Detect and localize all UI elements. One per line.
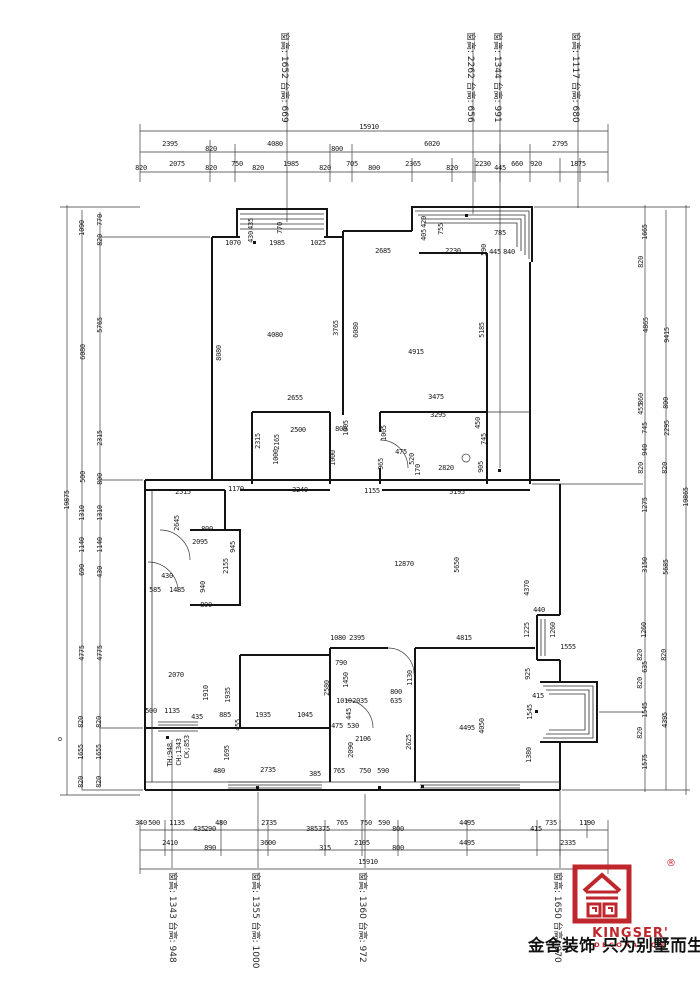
dim-label: 5185 — [478, 322, 486, 338]
dim-label: 5685 — [662, 559, 670, 575]
dim-label: 820 — [636, 649, 644, 661]
dim-label: 800 — [200, 601, 212, 609]
dim-label: 965 — [377, 458, 385, 470]
dim-label: 1135 — [164, 707, 180, 715]
dim-label: 2090 — [347, 742, 355, 758]
dim-label: 800 — [390, 688, 402, 696]
dim-label: 1070 — [225, 239, 241, 247]
dim-label: 2075 — [169, 160, 185, 168]
registered-mark: ® — [666, 858, 676, 869]
dim-label: 1025 — [310, 239, 326, 247]
dim-label: 1225 — [523, 622, 531, 638]
dim-label: 820 — [637, 462, 645, 474]
dim-label: 1090 — [78, 220, 86, 236]
dim-label: 590 — [377, 767, 389, 775]
dim-label: 820 — [77, 716, 85, 728]
dim-label: 705 — [346, 160, 358, 168]
dim-label: 1575 — [641, 754, 649, 770]
walls — [145, 207, 597, 790]
dim-label: 455 — [234, 719, 242, 731]
dim-label: 450 — [474, 417, 482, 429]
window-height-label-bottom: 窗高: 1343 台高: 948 — [167, 872, 180, 963]
dim-label: 375 — [318, 825, 330, 833]
dim-label: 385 — [306, 825, 318, 833]
dim-label: 770 — [96, 214, 104, 226]
dim-label: 4915 — [408, 348, 424, 356]
floor-plan-drawing: 1591023958204080800602027958202075820750… — [0, 0, 700, 1000]
dim-label: 435 — [191, 713, 203, 721]
dim-label: 820 — [77, 776, 85, 788]
dim-label: 800 — [392, 825, 404, 833]
dim-label: 820 — [661, 462, 669, 474]
dim-label: 2295 — [663, 420, 671, 436]
dim-label: 1985 — [283, 160, 299, 168]
dim-label: 2410 — [162, 839, 178, 847]
dim-label: 440 — [533, 606, 545, 614]
dim-label: 435 — [247, 218, 255, 230]
dim-label: 750 — [231, 160, 243, 168]
dim-label: 1310 — [96, 505, 104, 521]
dim-label: 585 — [149, 586, 161, 594]
dim-label: 2395 — [162, 140, 178, 148]
dim-label: 1140 — [96, 537, 104, 553]
dim-label: 800 — [392, 844, 404, 852]
dim-label: 500 — [148, 819, 160, 827]
dim-label: 420 — [420, 216, 428, 228]
dim-label: 6080 — [79, 344, 87, 360]
dim-label: 2106 — [355, 735, 371, 743]
dim-label: 1005 — [380, 425, 388, 441]
dim-label: 1695 — [223, 745, 231, 761]
dim-label: 1045 — [297, 711, 313, 719]
dim-label: 2335 — [560, 839, 576, 847]
dim-label: 2315 — [254, 433, 262, 449]
dim-label: 445 — [345, 708, 353, 720]
dim-label: 5650 — [453, 557, 461, 573]
window-height-label-bottom: 窗高: 1360 台高: 972 — [357, 872, 370, 963]
dim-label: 4050 — [478, 718, 486, 734]
dim-label: 1080 — [330, 634, 346, 642]
dim-label: 2645 — [173, 515, 181, 531]
dim-label: 2230 — [475, 160, 491, 168]
dim-label: 840 — [503, 248, 515, 256]
dim-label: 1665 — [641, 224, 649, 240]
dim-label: 690 — [78, 564, 86, 576]
dim-label: 820 — [95, 776, 103, 788]
dim-label: 1545 — [641, 702, 649, 718]
dim-label: 430 — [161, 572, 173, 580]
dim-label: 385 — [309, 770, 321, 778]
dim-label: 800 — [331, 145, 343, 153]
dim-label: 3295 — [430, 411, 446, 419]
dim-label: 820 — [135, 164, 147, 172]
dim-label: 735 — [545, 819, 557, 827]
dim-label: 885 — [219, 711, 231, 719]
dim-label: 750 — [359, 767, 371, 775]
dim-label: 920 — [530, 160, 542, 168]
dim-label: 1000 — [329, 450, 337, 466]
dim-label: 660 — [511, 160, 523, 168]
window-height-label-top: 窗高: 1344 台高: 991 — [492, 32, 505, 123]
dim-label: 800 — [662, 397, 670, 409]
dim-label: 590 — [480, 244, 488, 256]
dim-label: 12870 — [394, 560, 414, 568]
dim-label: 475 — [395, 448, 407, 456]
dim-label: 415 — [530, 825, 542, 833]
dim-label: 435 — [193, 825, 205, 833]
dim-label: 4775 — [78, 645, 86, 661]
dim-label: 2165 — [273, 434, 281, 450]
dim-label: 480 — [213, 767, 225, 775]
dim-label: 820 — [96, 234, 104, 246]
dim-label: 6080 — [352, 322, 360, 338]
dim-label: 1935 — [255, 711, 271, 719]
dim-label: 800 — [368, 164, 380, 172]
dim-label: 4495 — [459, 839, 475, 847]
dim-label: 4080 — [267, 331, 283, 339]
dim-label: 5765 — [96, 317, 104, 333]
dim-label: 445 — [489, 248, 501, 256]
window-height-label-top: 窗高: 1117 台高: 680 — [570, 32, 583, 123]
window-height-label-top: 窗高: 1652 台高: 669 — [279, 32, 292, 123]
dim-label: 3150 — [641, 557, 649, 573]
dim-label: 15910 — [359, 123, 379, 131]
dim-label: 820 — [636, 677, 644, 689]
dim-label: 2820 — [438, 464, 454, 472]
dim-label: 1010 — [336, 697, 352, 705]
dim-label: 1260 — [640, 622, 648, 638]
dim-label: 790 — [335, 659, 347, 667]
dim-label: 1555 — [560, 643, 576, 651]
dim-label: 315 — [319, 844, 331, 852]
dim-label: 4775 — [96, 645, 104, 661]
dim-label: 4495 — [459, 819, 475, 827]
dim-label: 2395 — [349, 634, 365, 642]
dim-label: 4080 — [267, 140, 283, 148]
dim-label: 1875 — [570, 160, 586, 168]
dim-label: 800 — [96, 473, 104, 485]
dim-label: 1310 — [78, 505, 86, 521]
dim-label: 340 — [135, 819, 147, 827]
dim-label: 530 — [347, 722, 359, 730]
dim-label: 940 — [641, 444, 649, 456]
dim-label: 4815 — [456, 634, 472, 642]
dim-label: 820 — [446, 164, 458, 172]
dim-label: 5195 — [449, 488, 465, 496]
dim-label: 1985 — [269, 239, 285, 247]
dim-label: 19865 — [682, 487, 690, 507]
dim-label: 820 — [205, 164, 217, 172]
dim-label: CK;853 — [183, 735, 191, 759]
dim-label: 2685 — [375, 247, 391, 255]
dim-label: 2035 — [352, 697, 368, 705]
dim-label: 170 — [414, 464, 422, 476]
dim-label: 1135 — [169, 819, 185, 827]
dim-label: 9415 — [663, 327, 671, 343]
dim-label: 500 — [145, 707, 157, 715]
dim-label: 2365 — [405, 160, 421, 168]
dim-label: 2735 — [260, 766, 276, 774]
dim-label: 755 — [437, 223, 445, 235]
dim-label: 1140 — [78, 537, 86, 553]
floor-plan-linework — [0, 0, 700, 1000]
dim-label: 1170 — [228, 485, 244, 493]
dim-label: 1485 — [169, 586, 185, 594]
dim-label: 8080 — [215, 345, 223, 361]
dim-label: 290 — [204, 825, 216, 833]
dim-label: 750 — [360, 819, 372, 827]
dim-label: 2500 — [290, 426, 306, 434]
dim-label: 3475 — [428, 393, 444, 401]
dim-label: 4865 — [642, 317, 650, 333]
dim-label: 1000 — [272, 449, 280, 465]
dim-label: 2105 — [354, 839, 370, 847]
window-height-label-bottom: 窗高: 1355 台高: 1000 — [250, 872, 263, 968]
dim-label: 635 — [390, 697, 402, 705]
dim-label: 455 — [637, 403, 645, 415]
dim-label: 6020 — [424, 140, 440, 148]
dim-label: 1275 — [641, 497, 649, 513]
dim-label: 2095 — [192, 538, 208, 546]
dim-label: 4395 — [661, 712, 669, 728]
dim-label: 945 — [229, 541, 237, 553]
dim-label: 4370 — [523, 580, 531, 596]
dim-label: 3600 — [260, 839, 276, 847]
dim-label: 1655 — [95, 744, 103, 760]
dim-label: 905 — [477, 461, 485, 473]
dim-label: 800 — [201, 525, 213, 533]
dim-label: 1380 — [525, 747, 533, 763]
dim-label: 820 — [636, 727, 644, 739]
dim-label: 2580 — [323, 680, 331, 696]
dim-label: 785 — [494, 229, 506, 237]
dim-label: 415 — [532, 692, 544, 700]
dim-label: 2315 — [96, 430, 104, 446]
window-height-label-top: 窗高: 2262 台高: 656 — [465, 32, 478, 123]
dim-label: 4495 — [459, 724, 475, 732]
dim-label: 1130 — [406, 670, 414, 686]
dim-label: 925 — [524, 668, 532, 680]
dim-label: 2735 — [261, 819, 277, 827]
dim-label: TH;948 — [166, 743, 174, 767]
dim-label: 445 — [494, 164, 506, 172]
dim-label: 2795 — [552, 140, 568, 148]
dim-label: 480 — [215, 819, 227, 827]
dim-label: 820 — [252, 164, 264, 172]
dim-label: 430 — [247, 231, 255, 243]
dim-label: 890 — [204, 844, 216, 852]
dim-label: 765 — [333, 767, 345, 775]
dim-label: 820 — [205, 145, 217, 153]
dim-label: 1545 — [526, 704, 534, 720]
dim-label: 1155 — [364, 487, 380, 495]
dim-label: 765 — [336, 819, 348, 827]
dim-label: 3240 — [292, 486, 308, 494]
dim-label: 820 — [660, 649, 668, 661]
dim-label: 500 — [79, 471, 87, 483]
dim-label: 2070 — [168, 671, 184, 679]
dim-label: 1005 — [342, 420, 350, 436]
dim-label: 820 — [319, 164, 331, 172]
dim-label: 745 — [480, 433, 488, 445]
dim-label: 590 — [378, 819, 390, 827]
dim-label: 745 — [641, 422, 649, 434]
dim-label: 2515 — [175, 488, 191, 496]
dim-label: 430 — [96, 566, 104, 578]
dim-label: 940 — [199, 581, 207, 593]
dim-label: 405 — [420, 229, 428, 241]
dim-label: 19875 — [63, 490, 71, 510]
dim-label: 2155 — [222, 558, 230, 574]
dim-label: 2230 — [445, 247, 461, 255]
dim-label: 1190 — [579, 819, 595, 827]
dim-label: 2625 — [405, 734, 413, 750]
dim-label: 820 — [637, 256, 645, 268]
dim-label: 1935 — [224, 687, 232, 703]
dim-label: 475 — [331, 722, 343, 730]
dim-label: 1910 — [202, 685, 210, 701]
dim-label: 15910 — [358, 858, 378, 866]
dim-label: 1655 — [77, 744, 85, 760]
dim-label: 1450 — [342, 672, 350, 688]
doors-fixtures — [59, 440, 471, 741]
dim-label: 3765 — [332, 320, 340, 336]
dim-label: 635 — [641, 661, 649, 673]
dim-label: CH;1343 — [175, 738, 183, 765]
dim-label: 770 — [276, 222, 284, 234]
dim-label: 2655 — [287, 394, 303, 402]
logo-tagline: 金舍装饰 只为别墅而生。 — [528, 932, 700, 956]
dim-label: 1260 — [549, 622, 557, 638]
dim-label: 820 — [95, 716, 103, 728]
